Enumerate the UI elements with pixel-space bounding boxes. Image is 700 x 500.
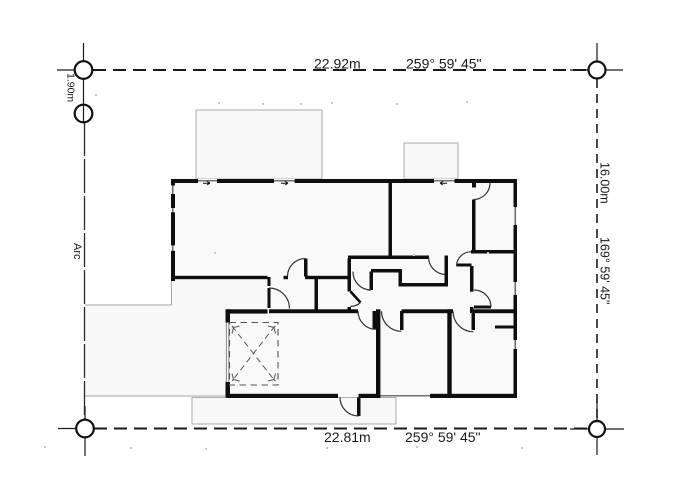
svg-text:169° 59' 45": 169° 59' 45" <box>598 237 612 304</box>
svg-text:22.81m: 22.81m <box>324 429 371 445</box>
svg-text:22.92m: 22.92m <box>314 56 361 72</box>
svg-text:259° 59' 45": 259° 59' 45" <box>406 56 482 72</box>
svg-text:16.00m: 16.00m <box>598 162 612 204</box>
svg-text:1.90m: 1.90m <box>65 73 77 102</box>
svg-text:Arc: Arc <box>71 243 83 260</box>
svg-text:259° 59' 45": 259° 59' 45" <box>405 429 481 445</box>
